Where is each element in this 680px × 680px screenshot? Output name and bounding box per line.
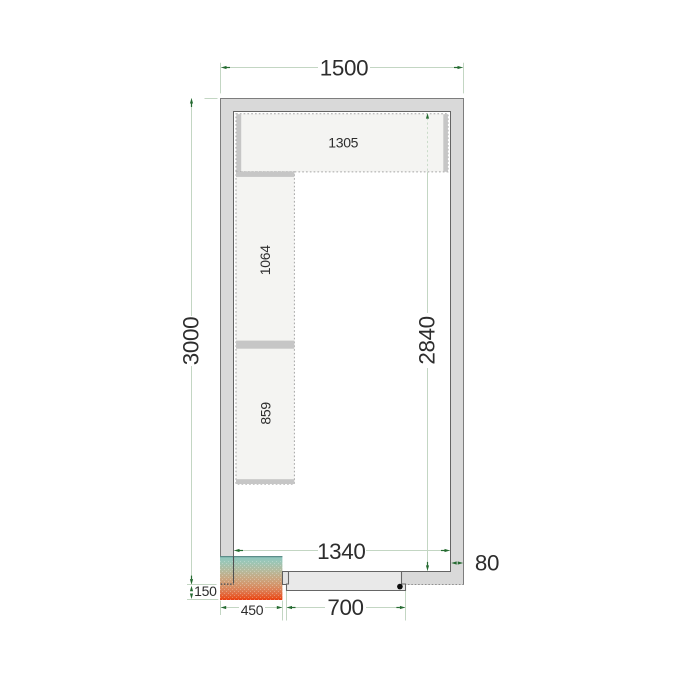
svg-text:2840: 2840: [414, 316, 439, 364]
svg-text:150: 150: [194, 583, 217, 599]
svg-text:1500: 1500: [320, 55, 368, 80]
svg-text:859: 859: [258, 402, 274, 425]
svg-text:3000: 3000: [178, 317, 203, 365]
svg-text:1305: 1305: [328, 135, 358, 151]
svg-text:80: 80: [475, 550, 499, 575]
svg-text:1064: 1064: [257, 245, 273, 275]
svg-text:450: 450: [241, 602, 264, 618]
svg-text:700: 700: [327, 595, 363, 620]
svg-text:1340: 1340: [317, 539, 365, 564]
